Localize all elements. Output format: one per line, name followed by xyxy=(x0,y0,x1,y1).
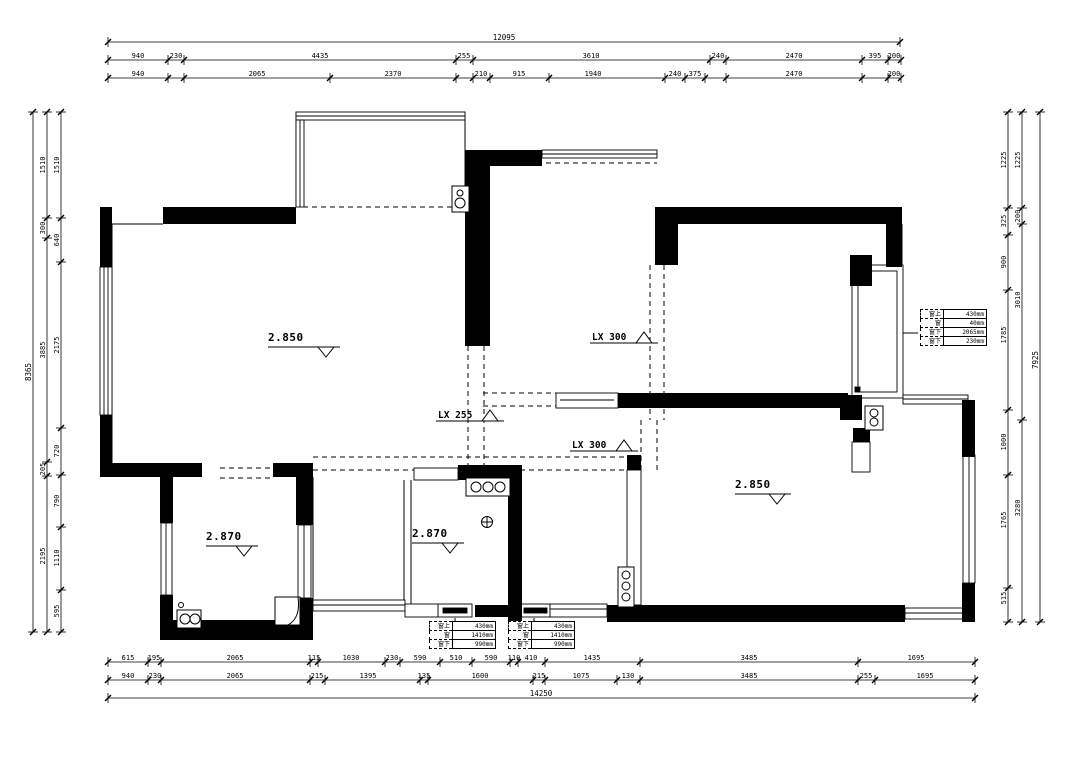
dim-value: 375 xyxy=(689,70,702,78)
level-mark: 2.850 xyxy=(735,478,791,504)
dim-value: 215 xyxy=(311,672,324,680)
level-mark: 2.850 xyxy=(268,331,340,357)
dim-value: 195 xyxy=(148,654,161,662)
dim-value: 130 xyxy=(622,672,635,680)
dim-value: 7925 xyxy=(1031,351,1040,369)
water-heater-icon xyxy=(618,567,634,607)
beam-label: LX 300 xyxy=(590,332,658,343)
dim-value: 615 xyxy=(122,654,135,662)
spec-label: 窗 xyxy=(430,631,453,640)
dim-chain: 9402065237021091519402403752470200 xyxy=(105,70,904,83)
dim-value: 2470 xyxy=(786,52,803,60)
dim-value: 135 xyxy=(418,672,431,680)
dim-value: 210 xyxy=(475,70,488,78)
dim-value: 900 xyxy=(1000,256,1008,269)
dim-value: 3280 xyxy=(1014,500,1022,517)
dim-value: 940 xyxy=(122,672,135,680)
dim-value: 255 xyxy=(860,672,873,680)
dim-value: 255 xyxy=(458,52,471,60)
dim-value: 205 xyxy=(39,463,47,476)
dim-value: 1510 xyxy=(39,157,47,174)
window-spec-table: 窗上430mm窗1410mm窗下990mm xyxy=(508,621,575,649)
window-spec-table: 窗上430mm窗1410mm窗下990mm xyxy=(429,621,496,649)
spec-label: 窗上 xyxy=(921,310,944,319)
spec-label: 窗下 xyxy=(430,640,453,649)
spec-value: 230mm xyxy=(944,337,987,346)
dim-value: 915 xyxy=(513,70,526,78)
level-value: 2.850 xyxy=(268,331,304,344)
spec-label: 窗下 xyxy=(509,640,532,649)
spec-value: 430mm xyxy=(944,310,987,319)
dim-value: 1395 xyxy=(360,672,377,680)
dim-chain: 940230443525536102402470395200 xyxy=(105,52,904,65)
floor-drain-icon xyxy=(482,517,493,528)
dim-value: 1695 xyxy=(917,672,934,680)
level-value: 2.850 xyxy=(735,478,771,491)
dim-value: 395 xyxy=(869,52,882,60)
dim-value: 1765 xyxy=(1000,512,1008,529)
dim-value: 325 xyxy=(1000,215,1008,228)
dim-value: 215 xyxy=(533,672,546,680)
walls-layer xyxy=(100,150,975,640)
spec-label: 窗下 xyxy=(921,328,944,337)
dim-value: 3485 xyxy=(741,654,758,662)
spec-label: 窗 xyxy=(921,319,944,328)
spec-label: 窗上 xyxy=(430,622,453,631)
annotation-layer: 2.8502.8702.8702.850LX 300LX 255LX 300 xyxy=(206,331,791,556)
dim-value: 1940 xyxy=(585,70,602,78)
dim-value: 200 xyxy=(1014,210,1022,223)
dim-value: 230 xyxy=(386,654,399,662)
spec-value: 430mm xyxy=(532,622,575,631)
dim-value: 590 xyxy=(485,654,498,662)
dim-value: 1695 xyxy=(908,654,925,662)
dim-value: 110 xyxy=(508,654,521,662)
spec-value: 2065mm xyxy=(944,328,987,337)
dim-value: 720 xyxy=(53,445,61,458)
window-spec-table: 窗上430mm窗40mm窗下2065mm窗下230mm xyxy=(920,309,987,346)
dim-value: 115 xyxy=(308,654,321,662)
door-leaf-icon xyxy=(275,597,300,625)
beam-label: LX 255 xyxy=(436,410,504,421)
beam-label: LX 300 xyxy=(570,440,638,451)
dim-value: 410 xyxy=(525,654,538,662)
washbasin-icon xyxy=(466,478,510,496)
dim-value: 12095 xyxy=(493,33,516,42)
dim-value: 1600 xyxy=(472,672,489,680)
spec-label: 窗下 xyxy=(921,337,944,346)
dim-value: 200 xyxy=(888,52,901,60)
meter-box-icon xyxy=(865,406,883,430)
spec-label: 窗 xyxy=(509,631,532,640)
level-mark: 2.870 xyxy=(412,527,464,553)
dim-value: 3485 xyxy=(741,672,758,680)
dim-value: 2065 xyxy=(249,70,266,78)
dim-value: 1225 xyxy=(1000,152,1008,169)
dim-value: 3010 xyxy=(1014,292,1022,309)
dim-value: 240 xyxy=(712,52,725,60)
floor-plan-canvas: 1209594023044352553610240247039520094020… xyxy=(0,0,1080,763)
dim-chain: 9402302065215139513516002151075130348525… xyxy=(105,672,978,685)
dim-value: 200 xyxy=(888,70,901,78)
dim-chain: 7925 xyxy=(1031,109,1045,625)
dim-value: 1785 xyxy=(1000,327,1008,344)
dim-value: 2370 xyxy=(385,70,402,78)
beam-value: LX 300 xyxy=(572,440,607,451)
dim-value: 1000 xyxy=(1000,434,1008,451)
spec-value: 990mm xyxy=(453,640,496,649)
dim-value: 3610 xyxy=(583,52,600,60)
dim-value: 1510 xyxy=(53,157,61,174)
dim-chain: 122520030103280 xyxy=(1014,109,1027,625)
dim-value: 790 xyxy=(53,495,61,508)
level-mark: 2.870 xyxy=(206,530,258,556)
dim-value: 4435 xyxy=(312,52,329,60)
dim-value: 2175 xyxy=(53,337,61,354)
dim-value: 3885 xyxy=(39,342,47,359)
kitchen-fixture-icon xyxy=(452,186,469,212)
dim-value: 8365 xyxy=(24,363,33,381)
dim-value: 1030 xyxy=(343,654,360,662)
spec-value: 430mm xyxy=(453,622,496,631)
dim-value: 2195 xyxy=(39,548,47,565)
spec-value: 40mm xyxy=(944,319,987,328)
dim-value: 940 xyxy=(132,70,145,78)
dim-value: 940 xyxy=(132,52,145,60)
level-value: 2.870 xyxy=(206,530,242,543)
spec-value: 1410mm xyxy=(453,631,496,640)
sink-icon xyxy=(177,603,201,629)
dim-value: 590 xyxy=(414,654,427,662)
dim-chain: 8365 xyxy=(24,109,38,635)
dim-chain: 12095 xyxy=(105,33,903,47)
beam-value: LX 255 xyxy=(438,410,473,421)
dim-value: 240 xyxy=(669,70,682,78)
dim-value: 640 xyxy=(53,234,61,247)
dim-chain: 6151952065115103023059051059011041014353… xyxy=(105,654,978,667)
dim-value: 14250 xyxy=(530,689,553,698)
spec-value: 1410mm xyxy=(532,631,575,640)
dim-value: 1110 xyxy=(53,550,61,567)
dim-chain: 1225325900178510001765515 xyxy=(1000,109,1013,625)
dim-value: 1435 xyxy=(584,654,601,662)
spec-label: 窗上 xyxy=(509,622,532,631)
dim-value: 2065 xyxy=(227,654,244,662)
dim-value: 595 xyxy=(53,605,61,618)
dim-value: 1075 xyxy=(573,672,590,680)
dim-value: 510 xyxy=(450,654,463,662)
dim-value: 230 xyxy=(170,52,183,60)
dim-value: 230 xyxy=(149,672,162,680)
level-value: 2.870 xyxy=(412,527,448,540)
dim-chain: 151030038852052195 xyxy=(39,109,52,635)
dim-value: 2065 xyxy=(227,672,244,680)
dim-chain: 14250 xyxy=(105,689,978,703)
beam-value: LX 300 xyxy=(592,332,627,343)
dim-value: 1225 xyxy=(1014,152,1022,169)
spec-value: 990mm xyxy=(532,640,575,649)
dim-value: 300 xyxy=(39,222,47,235)
dim-chain: 151064021757207901110595 xyxy=(53,109,66,635)
dim-value: 2470 xyxy=(786,70,803,78)
dim-value: 515 xyxy=(1000,592,1008,605)
